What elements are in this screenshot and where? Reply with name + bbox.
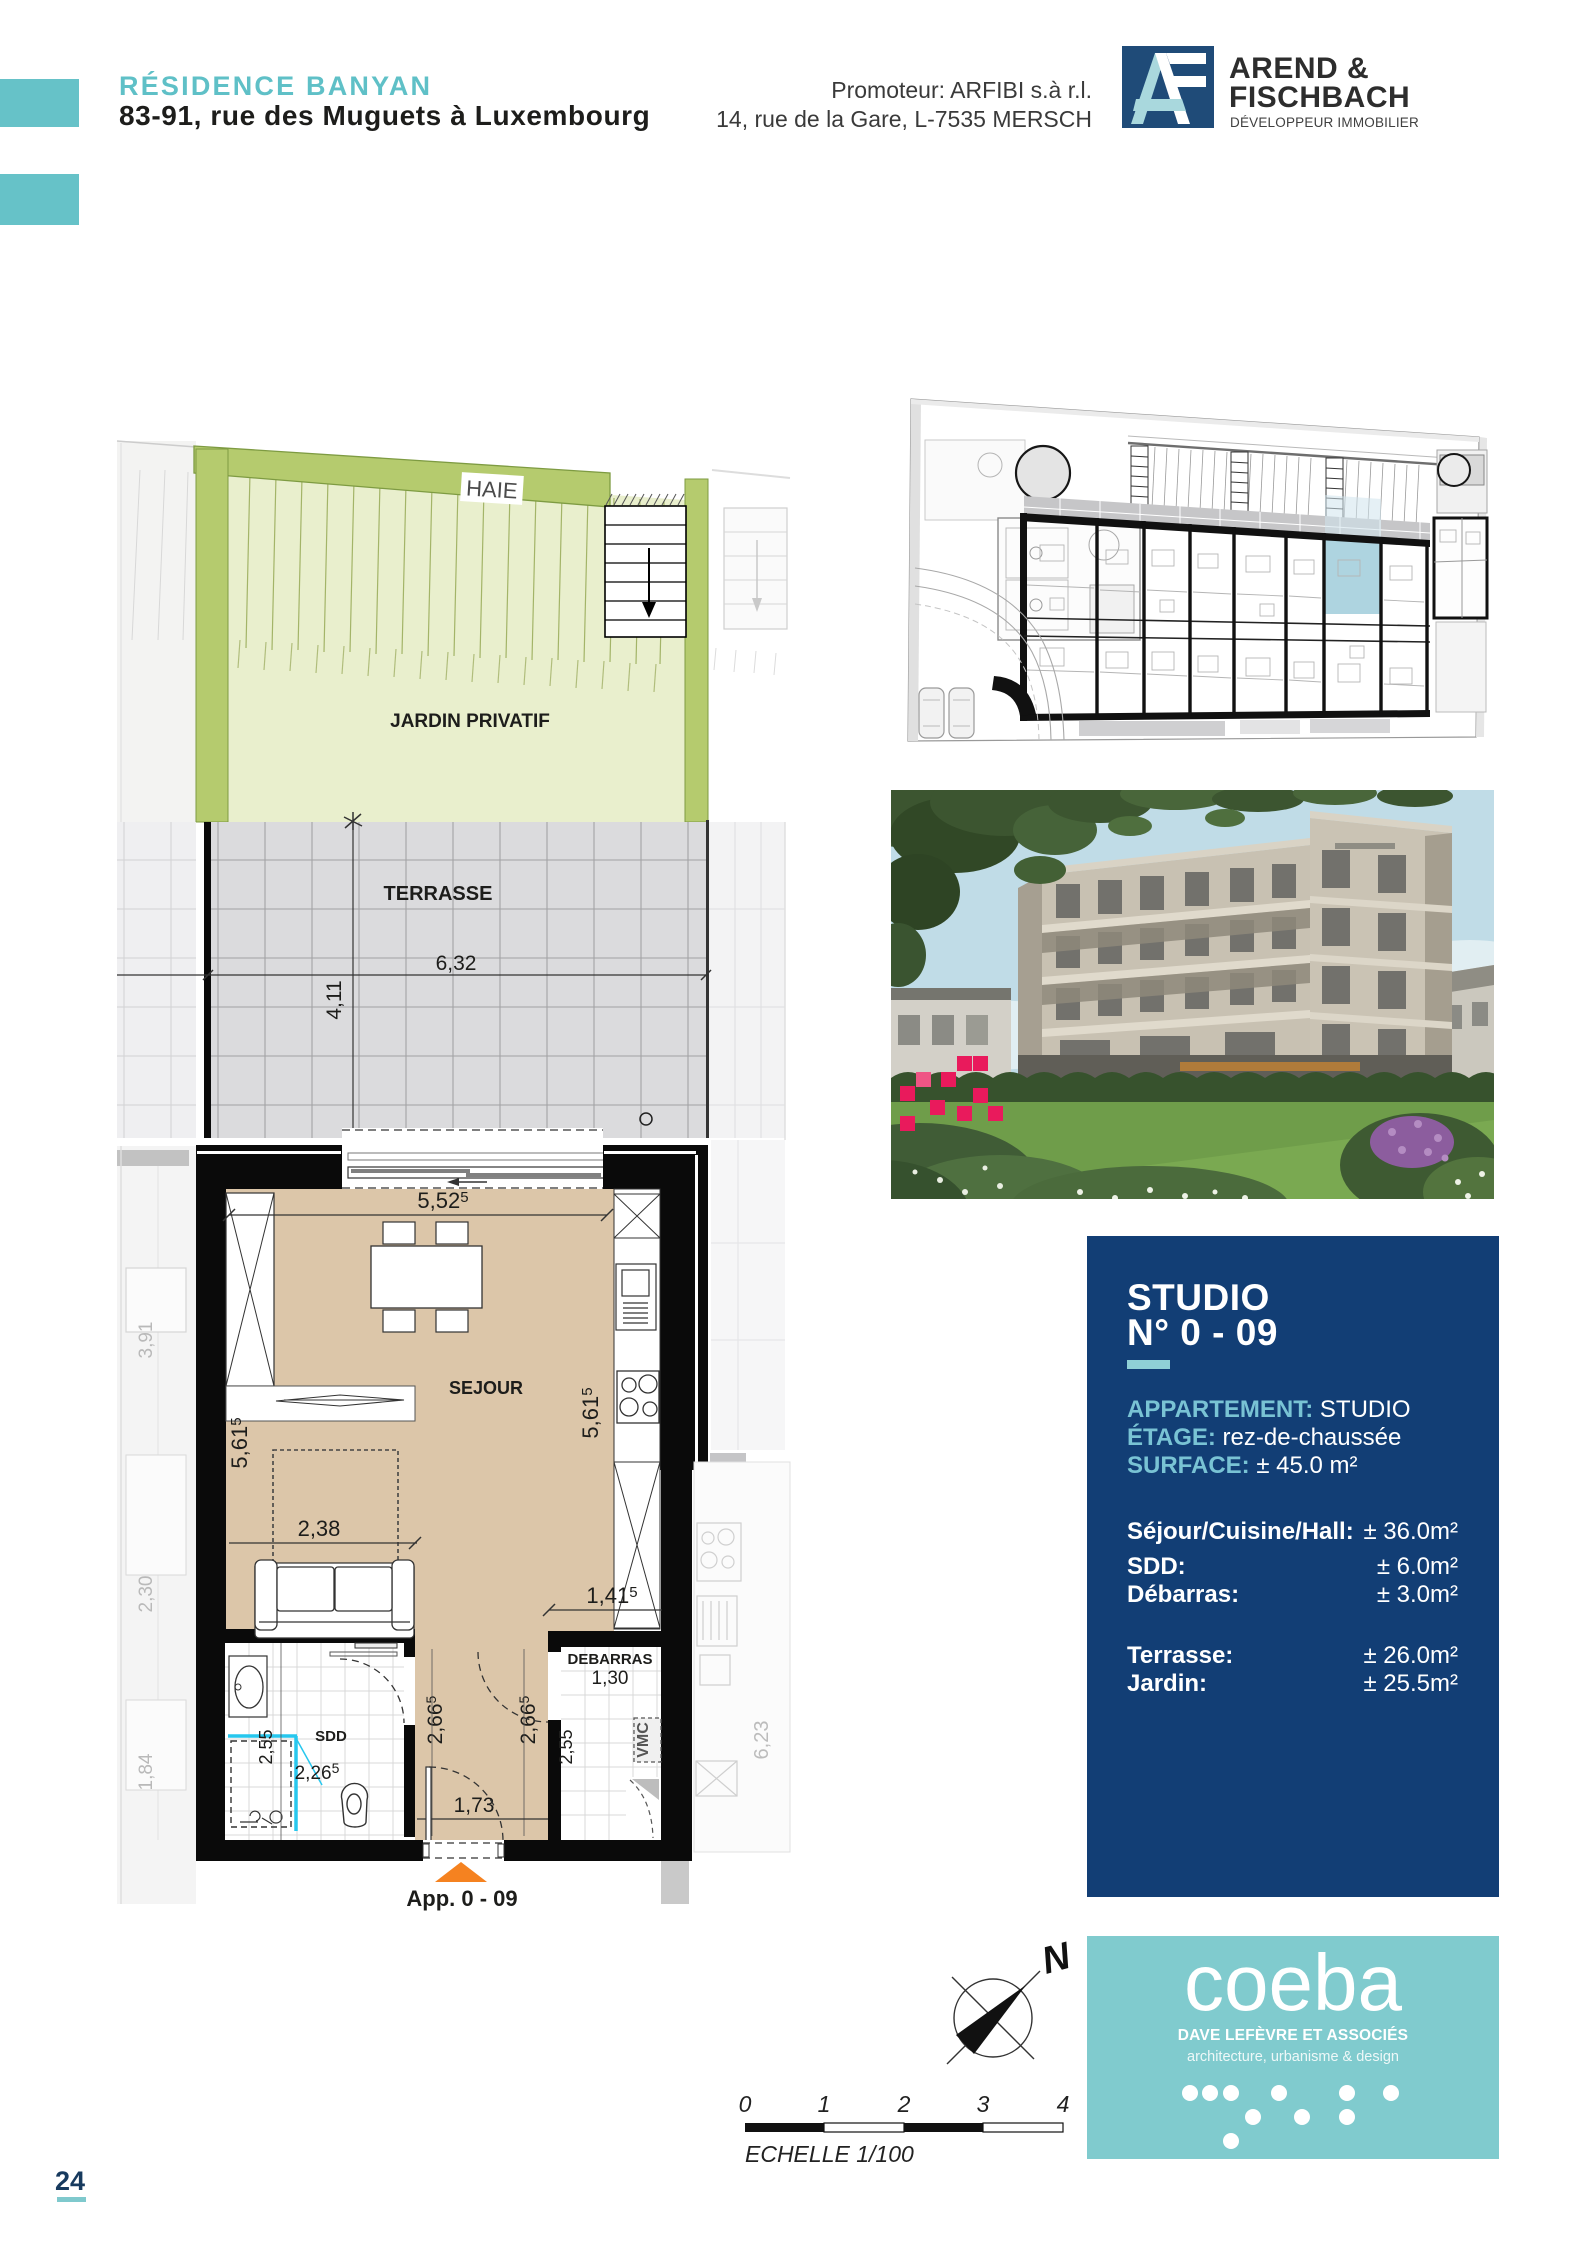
svg-text:2: 2	[897, 2091, 911, 2117]
svg-text:VMC: VMC	[635, 1722, 652, 1758]
svg-text:1,84: 1,84	[136, 1753, 157, 1790]
svg-text:ECHELLE 1/100: ECHELLE 1/100	[745, 2141, 914, 2167]
svg-text:1,30: 1,30	[592, 1668, 629, 1689]
svg-text:6,23: 6,23	[751, 1721, 773, 1760]
svg-text:6,32: 6,32	[436, 952, 477, 975]
svg-text:2,55: 2,55	[256, 1729, 276, 1764]
svg-text:2,30: 2,30	[136, 1576, 157, 1613]
svg-text:0: 0	[739, 2091, 752, 2117]
svg-text:1: 1	[818, 2091, 831, 2117]
svg-text:2,38: 2,38	[298, 1516, 341, 1541]
svg-text:JARDIN PRIVATIF: JARDIN PRIVATIF	[390, 711, 550, 732]
svg-text:2,55: 2,55	[556, 1729, 576, 1764]
svg-text:DEBARRAS: DEBARRAS	[567, 1651, 652, 1668]
svg-text:3: 3	[977, 2091, 990, 2117]
svg-text:HAIE: HAIE	[465, 475, 518, 503]
svg-text:SEJOUR: SEJOUR	[449, 1378, 523, 1398]
svg-text:N: N	[1037, 1935, 1076, 1983]
svg-text:4,11: 4,11	[323, 980, 346, 1019]
svg-text:SDD: SDD	[315, 1728, 347, 1745]
svg-text:1,73: 1,73	[454, 1794, 495, 1817]
svg-text:3,91: 3,91	[136, 1322, 157, 1359]
svg-text:TERRASSE: TERRASSE	[384, 883, 493, 905]
svg-text:4: 4	[1057, 2091, 1070, 2117]
svg-text:App. 0 - 09: App. 0 - 09	[406, 1886, 517, 1911]
